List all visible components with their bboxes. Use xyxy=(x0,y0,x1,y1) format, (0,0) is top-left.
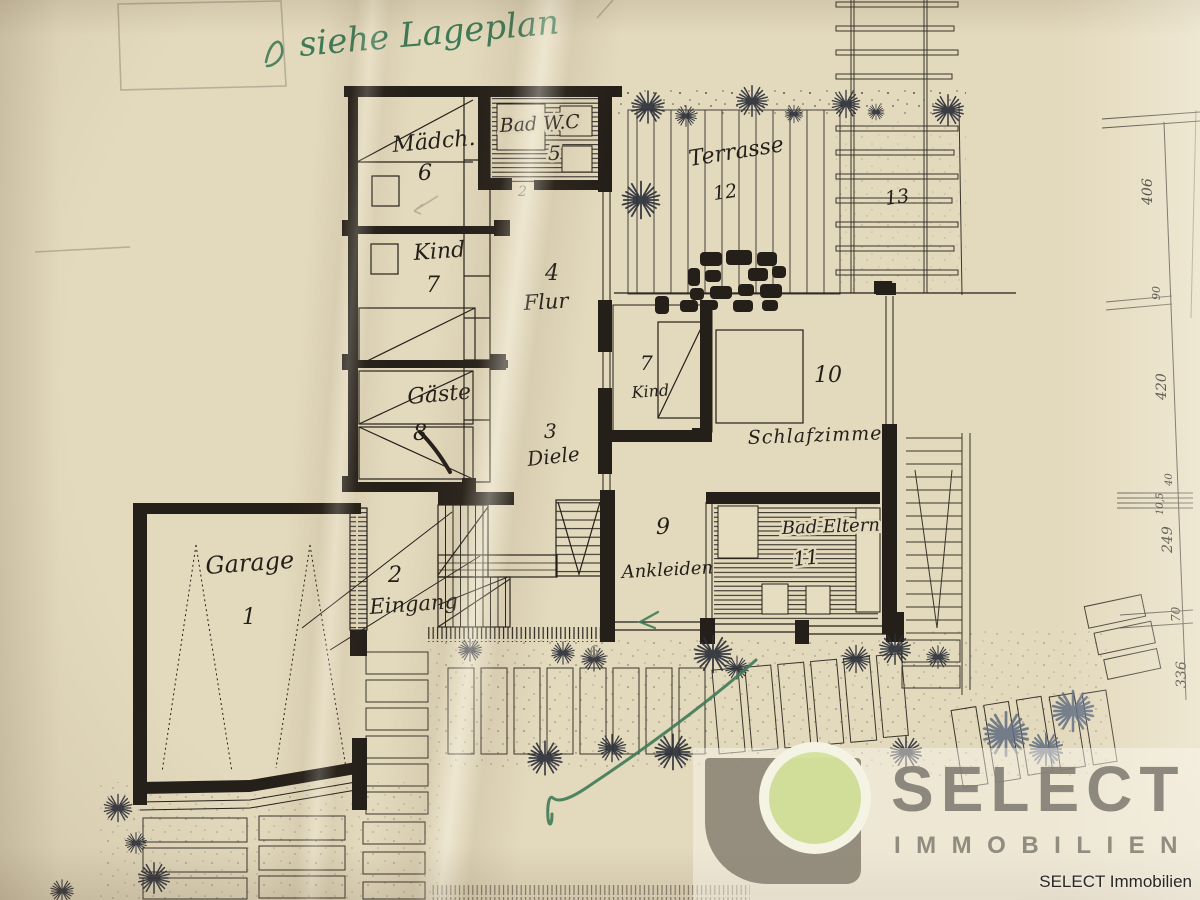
number-11: 11 xyxy=(792,544,820,571)
label-schlafzimmer: Schlafzimmer xyxy=(747,422,893,449)
select-logo-disc xyxy=(759,742,871,854)
number-7-east: 7 xyxy=(640,351,653,375)
dim-406: 406 xyxy=(1140,178,1156,206)
label-kind-west: Kind xyxy=(412,237,466,266)
dim-249: 249 xyxy=(1160,526,1176,554)
dim-10-5: 10,5 xyxy=(1155,493,1166,515)
credit-text: SELECT Immobilien xyxy=(1039,872,1192,892)
site-note-text: siehe Lageplan xyxy=(297,2,560,65)
number-5: 5 xyxy=(548,141,561,165)
dim-40: 40 xyxy=(1164,473,1175,487)
pencil-mark-2: 2 xyxy=(517,184,527,200)
label-diele: Diele xyxy=(525,442,581,471)
number-7-west: 7 xyxy=(426,273,440,298)
label-bad-wc: Bad W.C xyxy=(498,111,581,137)
pencil-rectangle xyxy=(118,1,286,90)
number-6: 6 xyxy=(418,161,432,186)
number-10: 10 xyxy=(814,363,842,388)
number-12: 12 xyxy=(712,180,739,205)
number-9: 9 xyxy=(656,515,670,540)
number-13: 13 xyxy=(884,185,911,210)
select-logo-icon xyxy=(705,758,861,884)
label-bad-eltern: Bad Eltern xyxy=(780,515,880,539)
dim-70: 70 xyxy=(1169,606,1183,622)
watermark-title: SELECT xyxy=(891,752,1185,826)
label-ankleiden: Ankleiden xyxy=(619,557,713,583)
number-4: 4 xyxy=(544,261,559,286)
dim-90: 90 xyxy=(1150,286,1163,300)
dim-420: 420 xyxy=(1154,373,1170,401)
label-garage: Garage xyxy=(204,546,295,580)
dim-336: 336 xyxy=(1174,661,1190,688)
number-3: 3 xyxy=(544,419,557,443)
scanned-floor-plan-photo: 406 90 420 40 10,5 249 70 336 xyxy=(0,0,1200,900)
number-8: 8 xyxy=(413,421,427,446)
label-gaeste: Gäste xyxy=(406,380,472,410)
label-flur: Flur xyxy=(522,289,571,315)
label-kind-east: Kind xyxy=(630,380,670,402)
watermark-subtitle: IMMOBILIEN xyxy=(894,832,1193,860)
number-1: 1 xyxy=(242,605,256,630)
number-2: 2 xyxy=(387,563,402,588)
